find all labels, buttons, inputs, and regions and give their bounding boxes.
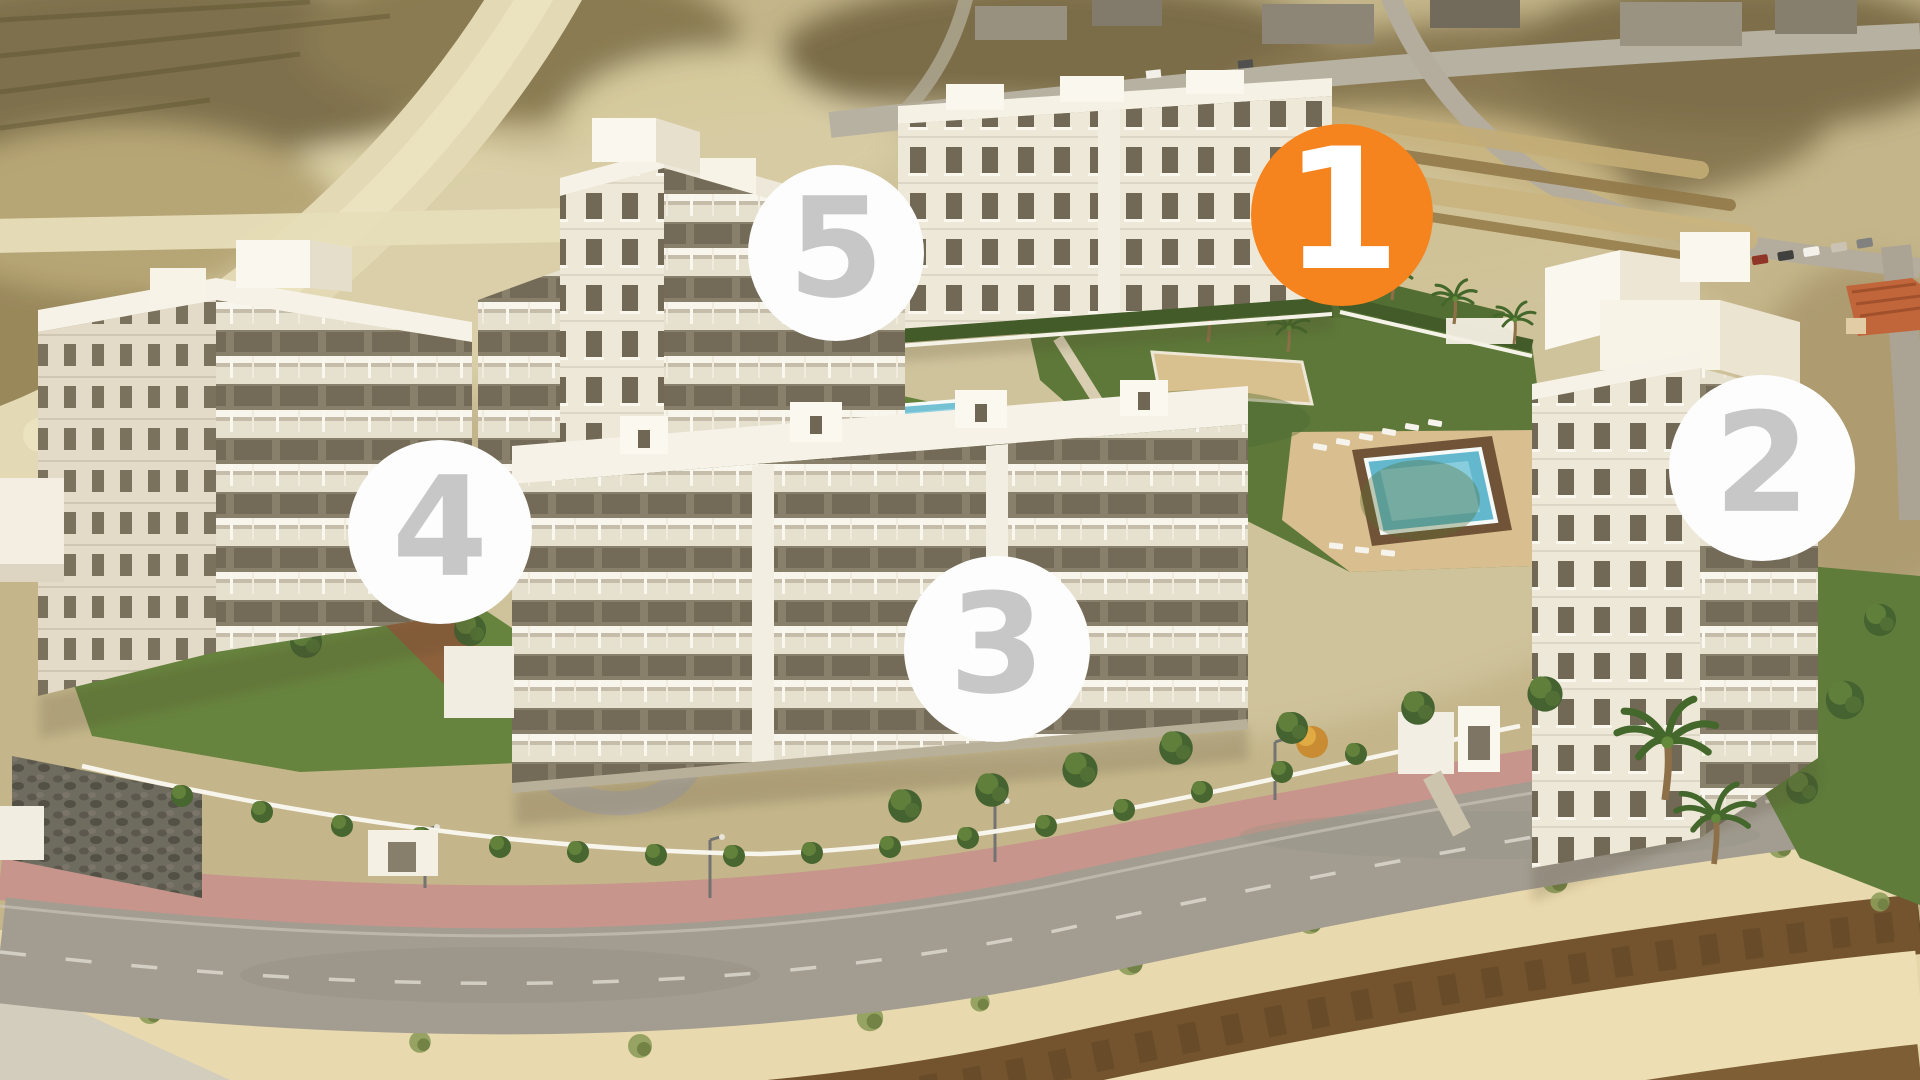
building-number-3: 3 [949,576,1045,714]
building-marker-4[interactable]: 4 [348,440,532,624]
building-marker-3[interactable]: 3 [904,556,1090,742]
warm-overlay [0,0,1920,1080]
building-number-4: 4 [392,459,488,597]
aerial-site-render: 1 2 3 4 5 [0,0,1920,1080]
building-number-2: 2 [1714,395,1810,533]
building-marker-5[interactable]: 5 [748,165,924,341]
building-number-1: 1 [1284,126,1401,294]
building-marker-2[interactable]: 2 [1669,375,1855,561]
building-marker-1[interactable]: 1 [1251,124,1433,306]
scene-illustration [0,0,1920,1080]
building-number-5: 5 [788,180,884,318]
